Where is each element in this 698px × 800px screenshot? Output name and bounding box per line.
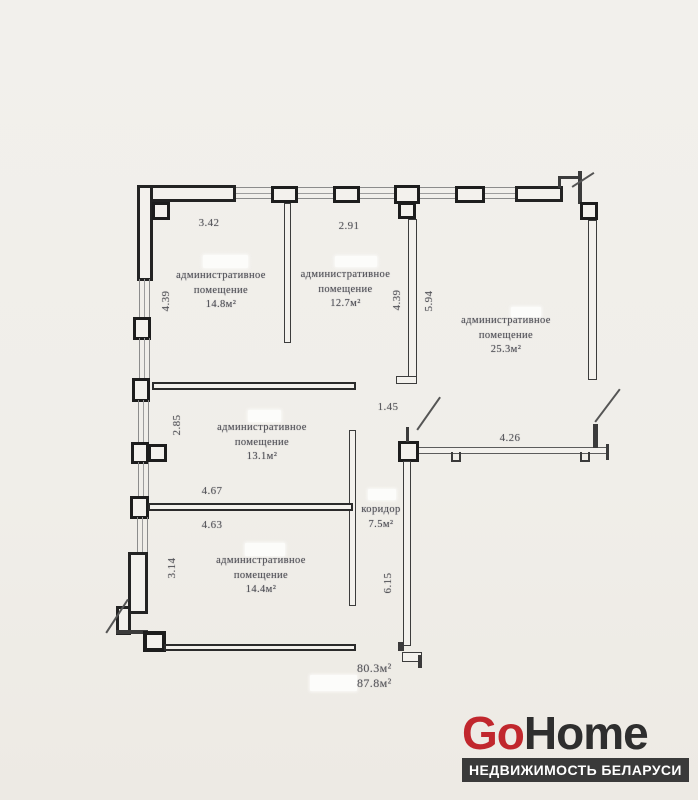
window-left-3 bbox=[138, 400, 149, 444]
pillar-bottom-left-corner bbox=[143, 631, 166, 652]
dim-room14-width: 4.63 bbox=[188, 519, 236, 531]
logo-go: Go bbox=[462, 707, 524, 759]
dim-right-lower: 4.26 bbox=[486, 432, 534, 444]
room-label-corridor: коридор 7.5м² bbox=[349, 503, 413, 532]
wall-partition-room2-room3-foot bbox=[396, 376, 417, 384]
room-5-name: административное помещение bbox=[195, 554, 327, 583]
redaction-patch-corridor bbox=[368, 489, 396, 500]
room-3-area: 25.3м² bbox=[440, 343, 572, 358]
pillar-top-4 bbox=[455, 186, 485, 203]
scanned-floorplan: административное помещение 14.8м² админи… bbox=[0, 0, 698, 800]
total-area-line2: 87.8м² bbox=[357, 676, 392, 691]
total-areas: 80.3м² 87.8м² bbox=[357, 661, 392, 691]
pillar-corridor-corner bbox=[398, 441, 419, 462]
redaction-patch-totals bbox=[310, 675, 357, 691]
wall-notch-2 bbox=[580, 452, 590, 462]
pillar-top-2 bbox=[333, 186, 360, 203]
wall-horizontal-lower bbox=[148, 503, 353, 511]
dim-mid-wall-left: 4.39 bbox=[391, 278, 403, 322]
corridor-name: коридор bbox=[349, 503, 413, 518]
room-4-name: административное помещение bbox=[196, 421, 328, 450]
redaction-patch-room2 bbox=[335, 256, 377, 267]
pillar-left-3 bbox=[131, 442, 149, 464]
room-4-area: 13.1м² bbox=[196, 450, 328, 465]
wall-bottom bbox=[164, 644, 356, 651]
room-label-4: административное помещение 13.1м² bbox=[196, 421, 328, 465]
wall-left-corner bbox=[137, 185, 153, 281]
leader-line-top-right bbox=[572, 172, 595, 187]
pillar-top-right-corner bbox=[580, 202, 598, 220]
room-2-name: административное помещение bbox=[283, 268, 408, 297]
dim-left-upper: 4.39 bbox=[160, 279, 172, 323]
wall-top-right-step-v bbox=[558, 176, 561, 188]
room-label-5: административное помещение 14.4м² bbox=[195, 554, 327, 598]
window-left-1 bbox=[139, 279, 150, 319]
pillar-top-3-sub bbox=[398, 202, 416, 219]
wall-corridor-right bbox=[403, 461, 411, 646]
wall-corridor-right-jog bbox=[398, 642, 404, 651]
room-label-3: административное помещение 25.3м² bbox=[440, 314, 572, 358]
wall-horizontal-upper bbox=[152, 382, 356, 390]
window-left-5 bbox=[137, 517, 148, 554]
leader-line-right-wall bbox=[594, 389, 620, 423]
pillar-left-4 bbox=[130, 496, 149, 519]
wall-right-room3 bbox=[588, 220, 597, 380]
room-label-1: административное помещение 14.8м² bbox=[157, 269, 285, 313]
wall-end-right bbox=[606, 444, 609, 460]
dim-corridor-top: 1.45 bbox=[364, 401, 412, 413]
dim-room13-width: 4.67 bbox=[188, 485, 236, 497]
logo-tagline: НЕДВИЖИМОСТЬ БЕЛАРУСИ bbox=[462, 758, 689, 782]
wall-top-right-stub bbox=[578, 171, 582, 204]
window-left-2 bbox=[139, 338, 150, 380]
room-1-area: 14.8м² bbox=[157, 298, 285, 313]
pillar-left-2 bbox=[132, 378, 150, 402]
window-left-4 bbox=[138, 462, 149, 498]
pillar-left-inner-corner bbox=[152, 202, 170, 220]
redaction-patch-room1 bbox=[203, 255, 248, 268]
wall-top-right-segment bbox=[515, 186, 563, 202]
logo-home: Home bbox=[524, 707, 648, 759]
pillar-top-1 bbox=[271, 186, 298, 203]
corridor-area: 7.5м² bbox=[349, 518, 413, 533]
wall-partition-room2-room3 bbox=[408, 219, 417, 378]
room-3-name: административное помещение bbox=[440, 314, 572, 343]
pillar-left-3-attached bbox=[148, 444, 167, 462]
wall-corridor-foot-stub bbox=[418, 655, 422, 668]
room-2-area: 12.7м² bbox=[283, 297, 408, 312]
dim-mid-wall-right: 5.94 bbox=[423, 279, 435, 323]
total-area-line1: 80.3м² bbox=[357, 661, 392, 676]
dim-top-left: 3.42 bbox=[185, 217, 233, 229]
dim-top-mid: 2.91 bbox=[325, 220, 373, 232]
wall-notch-1 bbox=[451, 452, 461, 462]
dim-corridor-height: 6.15 bbox=[382, 561, 394, 605]
logo-wordmark: GoHome bbox=[462, 710, 689, 756]
pillar-left-1 bbox=[133, 317, 151, 340]
dim-left-middle: 2.85 bbox=[171, 403, 183, 447]
room-label-2: административное помещение 12.7м² bbox=[283, 268, 408, 312]
leader-line-corridor-top bbox=[416, 397, 440, 431]
wall-stub-above-corridor bbox=[406, 427, 409, 442]
gohome-logo: GoHome НЕДВИЖИМОСТЬ БЕЛАРУСИ bbox=[462, 710, 689, 782]
room-1-name: административное помещение bbox=[157, 269, 285, 298]
dim-left-lower: 3.14 bbox=[166, 546, 178, 590]
wall-tick-right-upper bbox=[593, 424, 598, 448]
wall-left-bottom-segment bbox=[128, 552, 148, 614]
room-5-area: 14.4м² bbox=[195, 583, 327, 598]
